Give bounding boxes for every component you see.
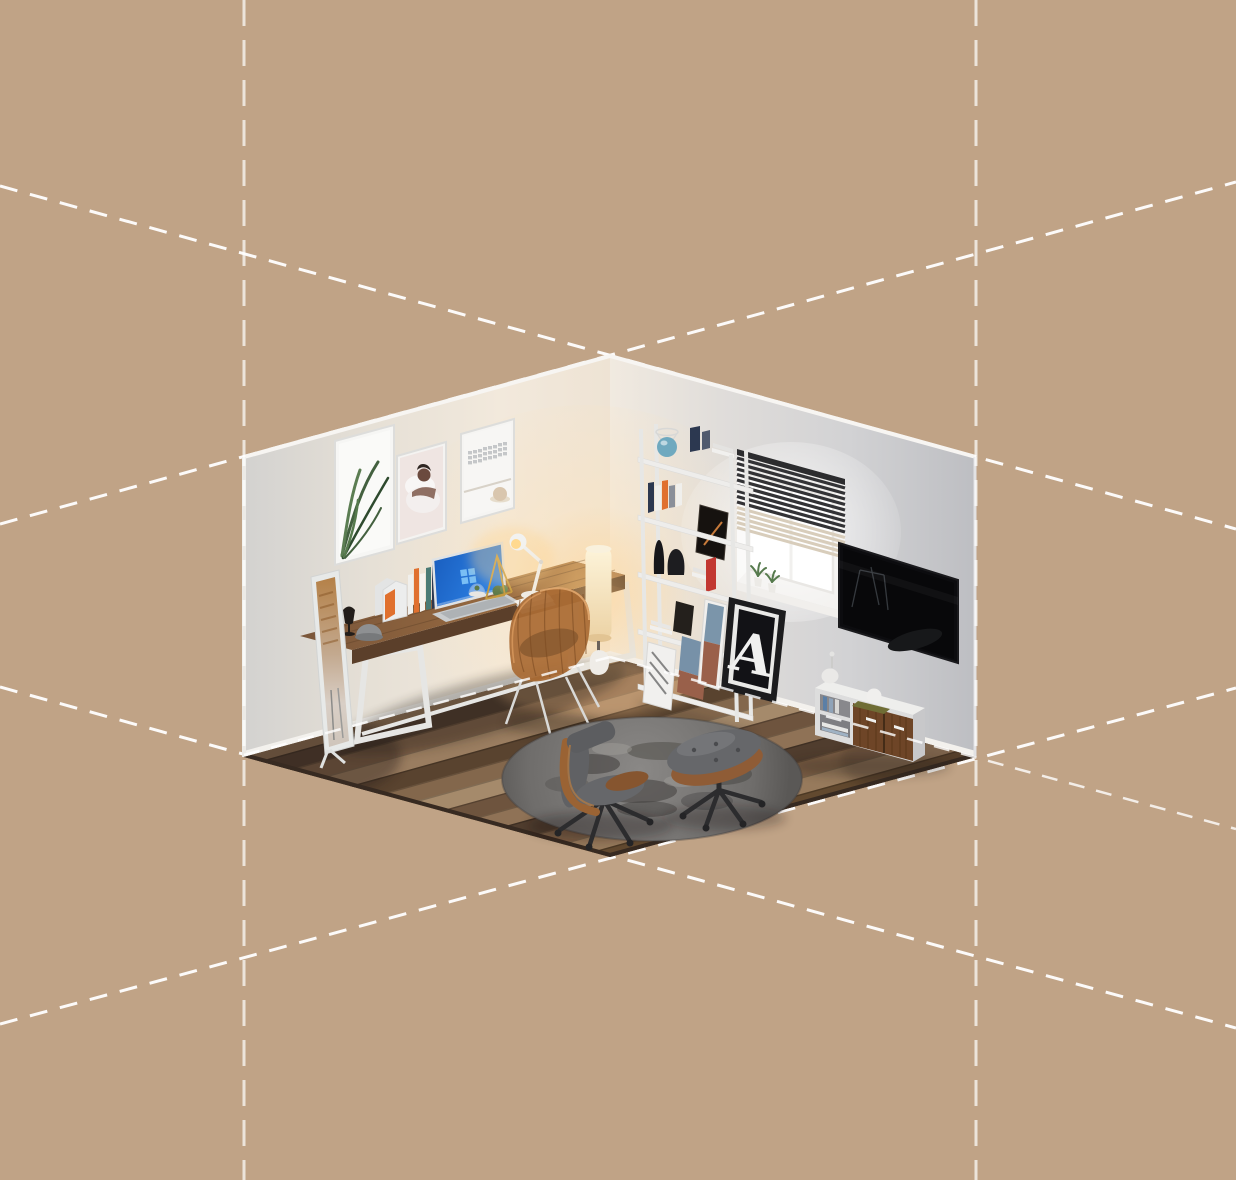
wall-frame-keyboard-photo: [461, 419, 514, 523]
wall-frame-portrait: [397, 442, 446, 544]
letter-poster-group: A: [698, 597, 786, 703]
letter-a-poster: A: [721, 597, 786, 703]
canvas: A: [0, 0, 1236, 1180]
credenza-side: [913, 708, 925, 762]
wall-frame-plant: [335, 425, 394, 565]
isometric-room-illustration: A: [0, 0, 1236, 1180]
red-book: [706, 557, 716, 592]
white-jar: [867, 689, 882, 704]
credenza-shadow: [790, 755, 950, 777]
floor-vase: [590, 650, 609, 675]
